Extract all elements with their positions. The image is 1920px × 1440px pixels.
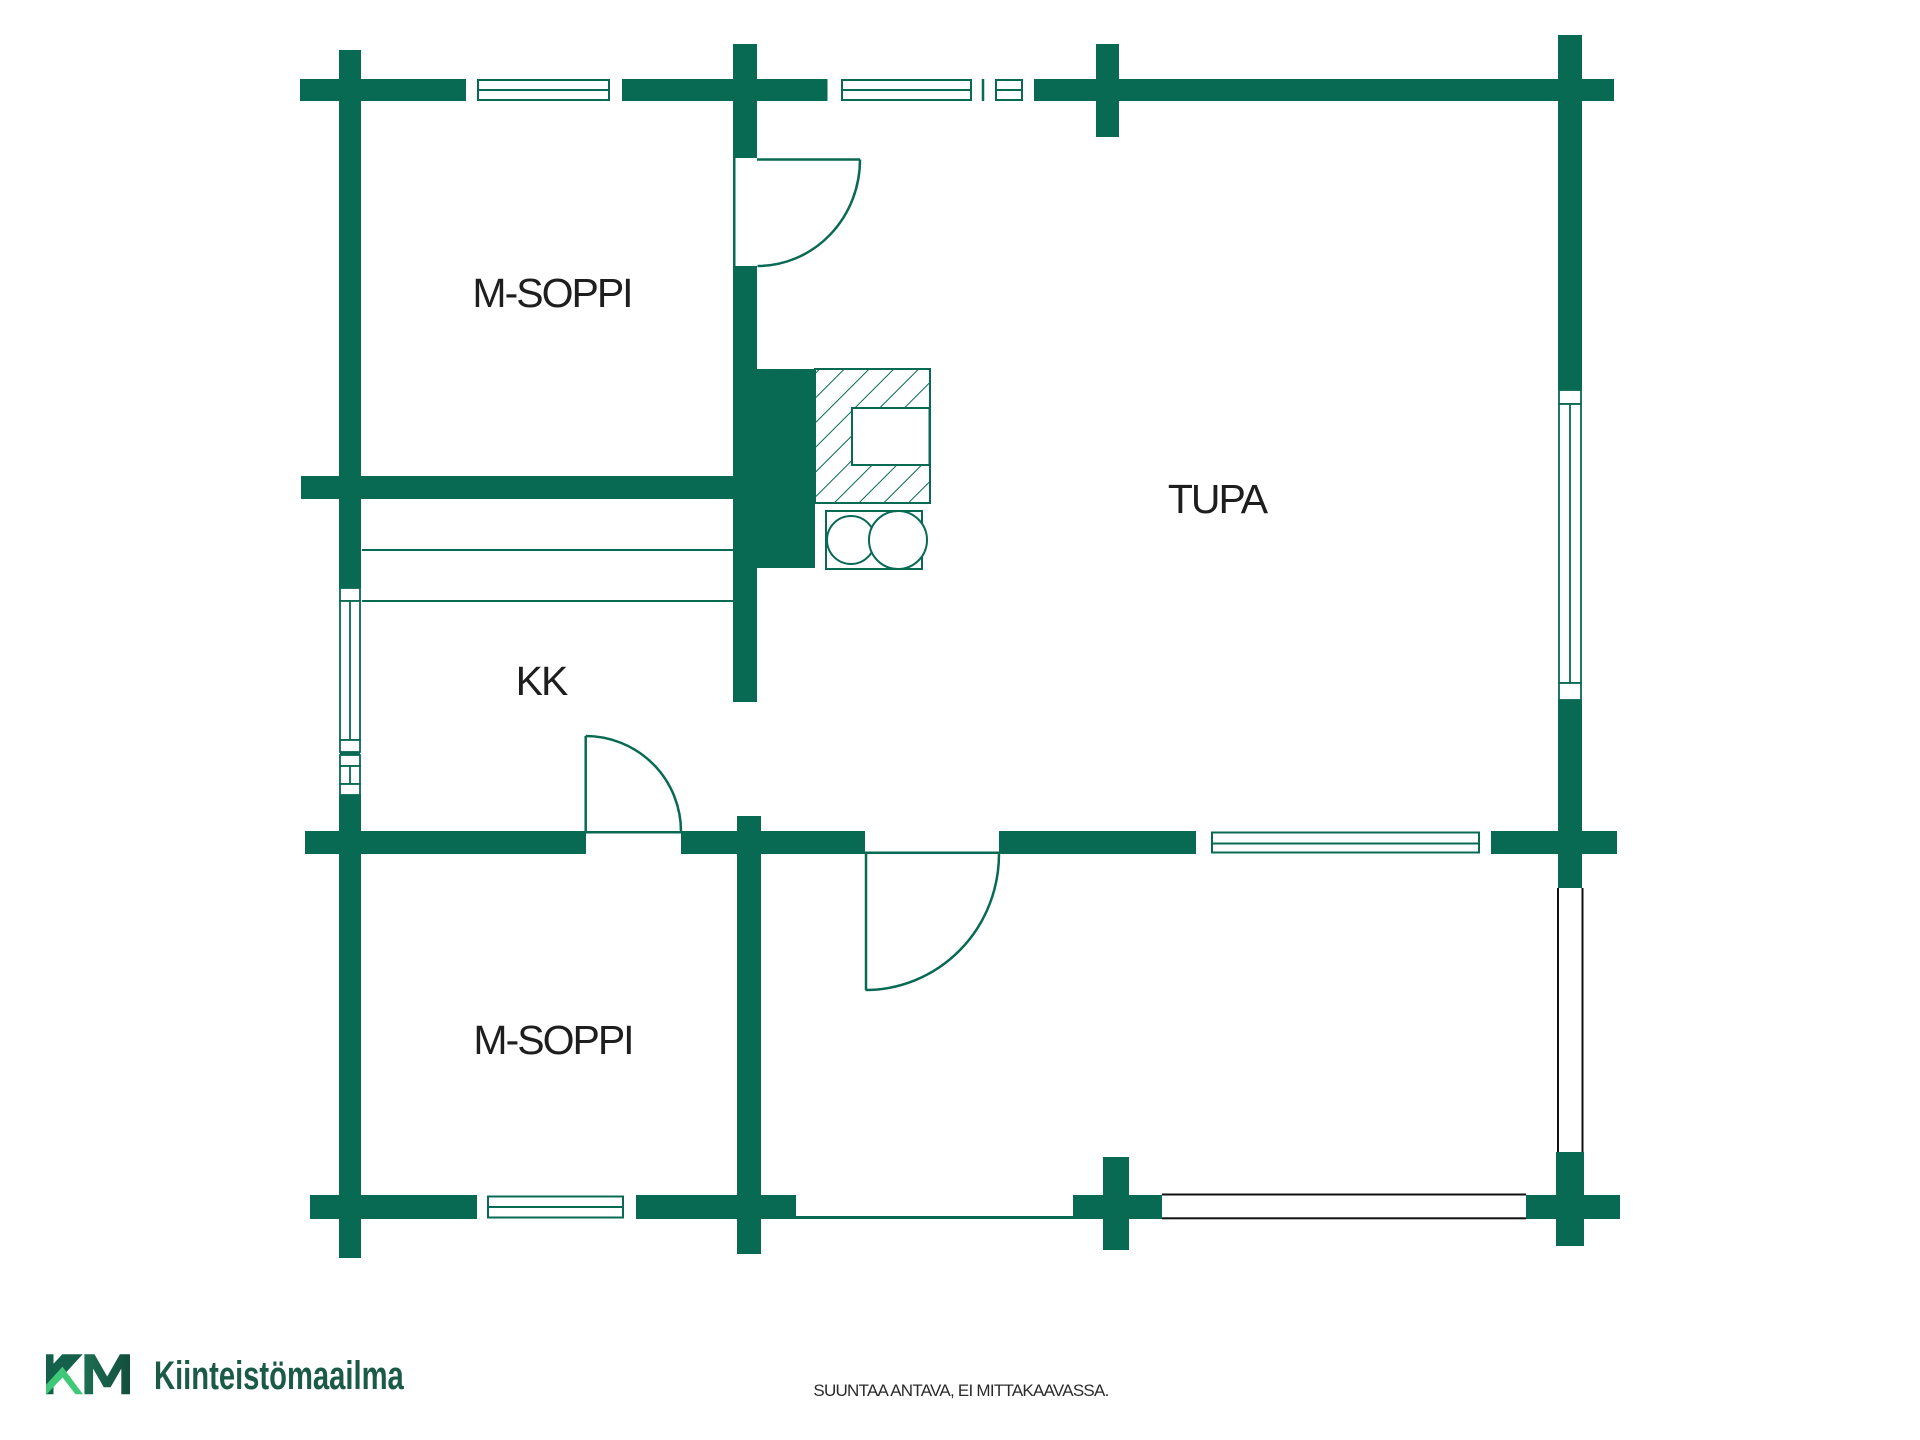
svg-text:Kiinteistömaailma: Kiinteistömaailma bbox=[154, 1354, 404, 1399]
svg-text:TUPA: TUPA bbox=[1168, 476, 1269, 522]
svg-text:SUUNTAA ANTAVA, EI MITTAKAAVAS: SUUNTAA ANTAVA, EI MITTAKAAVASSA. bbox=[813, 1381, 1108, 1400]
svg-text:KK: KK bbox=[516, 658, 568, 704]
svg-text:M-SOPPI: M-SOPPI bbox=[473, 1017, 632, 1063]
svg-text:M-SOPPI: M-SOPPI bbox=[472, 270, 631, 316]
